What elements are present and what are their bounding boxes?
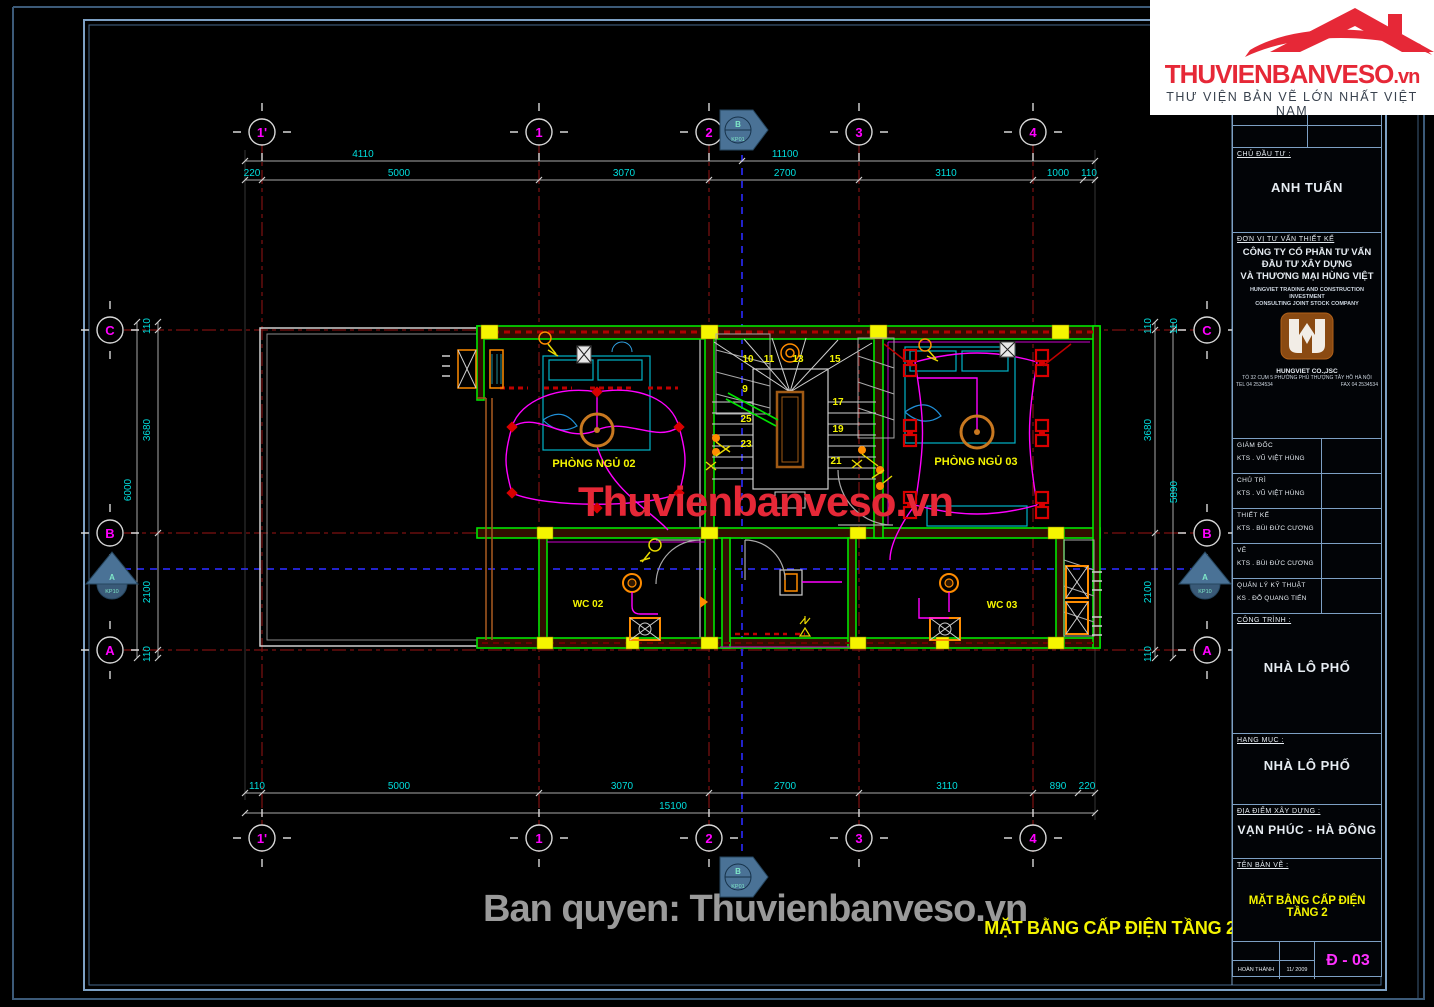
roof-logo-icon: [1150, 0, 1434, 58]
grid-col-label: 1': [257, 125, 267, 140]
room-label-wc03: WC 03: [987, 600, 1018, 611]
role-row-qa: QUẢN LÝ KỸ THUẬT KS . ĐỖ QUANG TIẾN: [1233, 579, 1381, 614]
company-tel: TEL 04 2534534: [1236, 382, 1273, 389]
copyright-watermark: Ban quyen: Thuvienbanveso.vn: [483, 888, 1027, 930]
logo-slogan: THƯ VIỆN BẢN VẼ LỚN NHẤT VIỆT NAM: [1150, 90, 1434, 118]
marker-label: A: [1202, 573, 1208, 582]
company-fax: FAX 04 2534534: [1341, 382, 1378, 389]
signature-cell: [1322, 544, 1381, 578]
floor-plan-canvas: 4110 11100 220 5000 3070 2700 3110 1000 …: [0, 0, 1434, 1007]
dim-text: 11100: [772, 149, 799, 160]
sheet-footer: HOÀN THÀNH 11/ 2009 Đ - 03: [1233, 942, 1381, 979]
role-title: QUẢN LÝ KỸ THUẬT: [1237, 582, 1321, 589]
completed-date: 11/ 2009: [1280, 961, 1314, 979]
grid-row-label: C: [1202, 323, 1212, 338]
dim-text: 1000: [1047, 168, 1070, 179]
dim-text: 110: [1143, 646, 1154, 662]
stair-number: 9: [742, 384, 748, 395]
role-name: KTS . BÙI ĐỨC CƯƠNG: [1237, 560, 1321, 567]
wc02-fixtures: [623, 539, 708, 640]
dim-text: 5890: [1169, 480, 1180, 503]
role-title: THIẾT KẾ: [1237, 512, 1321, 519]
grid-col-label: 3: [855, 125, 862, 140]
company-logo-icon: [1279, 311, 1335, 363]
cad-sheet: 4110 11100 220 5000 3070 2700 3110 1000 …: [0, 0, 1434, 1007]
grid-row-label: B: [105, 526, 114, 541]
grid-col-label: 3: [855, 831, 862, 846]
category-label: HẠNG MỤC :: [1233, 734, 1381, 744]
hall-fixtures: [735, 540, 842, 636]
marker-label: B: [735, 120, 741, 129]
location-name: VẠN PHÚC - HÀ ĐÔNG: [1233, 823, 1381, 837]
dim-text: 110: [1143, 318, 1154, 334]
dim-text: 2100: [1143, 580, 1154, 603]
grid-row-label: A: [105, 643, 115, 658]
role-name: KS . ĐỖ QUANG TIẾN: [1237, 595, 1321, 602]
dim-text: 110: [142, 318, 153, 334]
sheet-label: TÊN BẢN VẼ :: [1233, 859, 1381, 869]
location-section: ĐỊA ĐIỂM XÂY DỰNG : VẠN PHÚC - HÀ ĐÔNG: [1233, 805, 1381, 859]
stair-number: 15: [829, 354, 841, 365]
grid-row-label: A: [1202, 643, 1212, 658]
section-marker-left: A KP10: [86, 552, 138, 599]
dim-text: 3110: [935, 168, 957, 179]
marker-ref: KP10: [105, 589, 118, 595]
dim-text: 15100: [659, 801, 687, 812]
drawing-caption: MẶT BẰNG CẤP ĐIỆN TẦNG 2: [984, 917, 1236, 938]
signature-cell: [1322, 509, 1381, 543]
stair-number: 19: [832, 424, 844, 435]
role-name: KTS . VŨ VIỆT HÙNG: [1237, 490, 1321, 497]
dim-text: 110: [1081, 168, 1097, 179]
dim-text: 220: [244, 168, 261, 179]
role-title: CHỦ TRÌ: [1237, 477, 1321, 484]
grid-col-label: 1': [257, 831, 267, 846]
dim-text: 5000: [388, 168, 411, 179]
sheet-number: Đ - 03: [1315, 942, 1381, 979]
completed-label: HOÀN THÀNH: [1233, 961, 1279, 979]
marker-label: B: [735, 867, 741, 876]
category-name: NHÀ LÔ PHỐ: [1233, 758, 1381, 773]
company-en-line2: CONSULTING JOINT STOCK COMPANY: [1233, 301, 1381, 308]
dim-text: 890: [1050, 781, 1067, 792]
dim-text: 3110: [936, 781, 958, 792]
dim-text: 110: [1169, 318, 1180, 334]
sheet-name-section: TÊN BẢN VẼ : MẶT BẰNG CẤP ĐIỆN TẦNG 2: [1233, 859, 1381, 942]
company-name-line1: CÔNG TY CỔ PHẦN TƯ VẤN: [1233, 247, 1381, 259]
dim-text: 4110: [352, 149, 374, 160]
company-short-name: HUNGVIET CO.,JSC: [1233, 368, 1381, 375]
signature-cell: [1322, 474, 1381, 508]
title-block-empty-row2: [1233, 126, 1381, 148]
role-title: GIÁM ĐỐC: [1237, 442, 1321, 449]
stair-number: 10: [742, 354, 754, 365]
grid-col-label: 2: [705, 831, 712, 846]
marker-label: A: [109, 573, 115, 582]
dim-text: 3070: [613, 168, 636, 179]
company-en-line1: HUNGVIET TRADING AND CONSTRUCTION INVEST…: [1233, 287, 1381, 301]
role-name: KTS . BÙI ĐỨC CƯƠNG: [1237, 525, 1321, 532]
consultant-section: ĐƠN VỊ TƯ VẤN THIẾT KẾ CÔNG TY CỔ PHẦN T…: [1233, 233, 1381, 439]
dim-text: 6000: [123, 478, 134, 501]
signature-cell: [1322, 579, 1381, 613]
company-name-line3: VÀ THƯƠNG MẠI HÙNG VIỆT: [1233, 271, 1381, 283]
dim-text: 220: [1079, 781, 1096, 792]
location-label: ĐỊA ĐIỂM XÂY DỰNG :: [1233, 805, 1381, 815]
stair-number: 17: [832, 397, 844, 408]
role-name: KTS . VŨ VIỆT HÙNG: [1237, 455, 1321, 462]
role-row-designer: THIẾT KẾ KTS . BÙI ĐỨC CƯƠNG: [1233, 509, 1381, 544]
center-watermark: Thuvienbanveso.vn: [578, 478, 953, 525]
marker-ref: KP10: [1198, 589, 1211, 595]
investor-label: CHỦ ĐẦU TƯ :: [1233, 148, 1381, 158]
stair-number: 11: [764, 354, 775, 365]
role-row-lead: CHỦ TRÌ KTS . VŨ VIỆT HÙNG: [1233, 474, 1381, 509]
stair-number: 21: [830, 456, 842, 467]
role-row-director: GIÁM ĐỐC KTS . VŨ VIỆT HÙNG: [1233, 439, 1381, 474]
role-row-drafter: VẼ KTS . BÙI ĐỨC CƯƠNG: [1233, 544, 1381, 579]
dim-text: 2700: [774, 168, 797, 179]
project-label: CÔNG TRÌNH :: [1233, 614, 1381, 624]
investor-name: ANH TUẤN: [1233, 180, 1381, 195]
room-label-bedroom03: PHÒNG NGỦ 03: [934, 455, 1017, 468]
room-label-bedroom02: PHÒNG NGỦ 02: [552, 457, 635, 470]
stair-number: 23: [740, 439, 752, 450]
dim-text: 2700: [774, 781, 797, 792]
section-marker-right: A KP10: [1179, 552, 1231, 599]
consultant-label: ĐƠN VỊ TƯ VẤN THIẾT KẾ: [1233, 233, 1381, 243]
room-label-wc02: WC 02: [573, 599, 604, 610]
grid-col-label: 1: [535, 831, 542, 846]
dim-text: 3680: [1143, 418, 1154, 441]
company-address: TỔ 32 CỤM 5 PHƯỜNG PHÚ THƯỢNG TÂY HỒ HÀ …: [1233, 375, 1381, 382]
investor-section: CHỦ ĐẦU TƯ : ANH TUẤN: [1233, 148, 1381, 233]
grid-row-label: C: [105, 323, 115, 338]
role-title: VẼ: [1237, 547, 1321, 554]
grid-col-label: 2: [705, 125, 712, 140]
dim-text: 5000: [388, 781, 411, 792]
stair-number: 25: [740, 414, 752, 425]
logo-wordmark: THUVIENBANVESO.vn: [1150, 61, 1434, 87]
site-logo: THUVIENBANVESO.vn THƯ VIỆN BẢN VẼ LỚN NH…: [1150, 0, 1434, 115]
dim-text: 2100: [142, 580, 153, 603]
project-section: CÔNG TRÌNH : NHÀ LÔ PHỐ: [1233, 614, 1381, 734]
dim-text: 110: [142, 646, 153, 662]
title-block: CHỦ ĐẦU TƯ : ANH TUẤN ĐƠN VỊ TƯ VẤN THIẾ…: [1232, 110, 1382, 977]
grid-col-label: 4: [1029, 125, 1037, 140]
grid-col-label: 1: [535, 125, 542, 140]
grid-col-label: 4: [1029, 831, 1037, 846]
grid-row-label: B: [1202, 526, 1211, 541]
dim-text: 3680: [142, 418, 153, 441]
company-name-line2: ĐẦU TƯ XÂY DỰNG: [1233, 259, 1381, 271]
signature-cell: [1322, 439, 1381, 473]
category-section: HẠNG MỤC : NHÀ LÔ PHỐ: [1233, 734, 1381, 805]
marker-ref: KP01: [731, 137, 744, 143]
project-name: NHÀ LÔ PHỐ: [1233, 660, 1381, 675]
sheet-title: MẶT BẰNG CẤP ĐIỆN TẦNG 2: [1233, 895, 1381, 919]
stair-number: 13: [792, 354, 804, 365]
section-marker-top: B KP01: [720, 110, 768, 150]
dim-text: 110: [249, 781, 265, 792]
dim-text: 3070: [611, 781, 634, 792]
